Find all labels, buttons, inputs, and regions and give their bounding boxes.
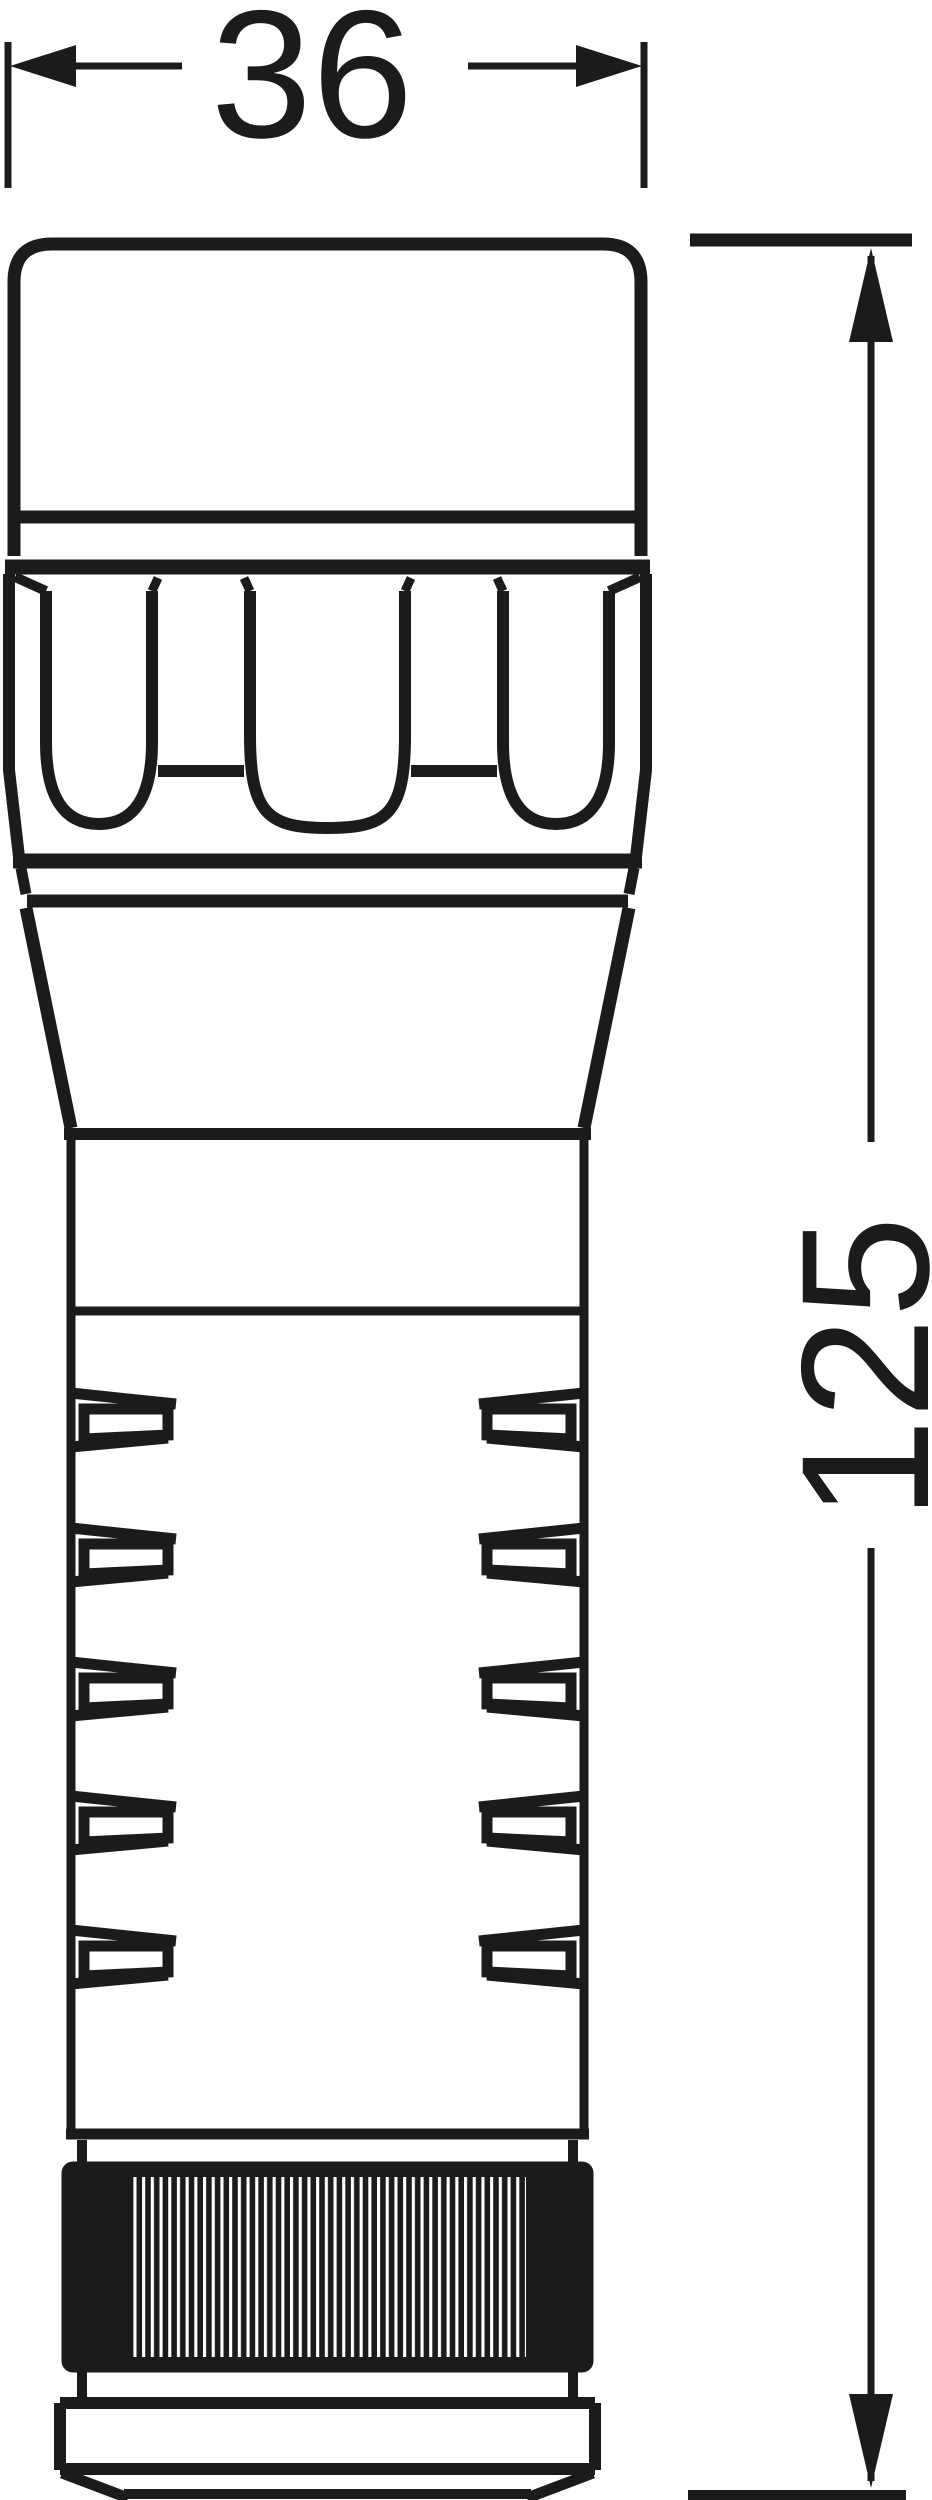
- bezel-groove: [46, 591, 152, 824]
- notch-lip-top: [71, 1662, 176, 1673]
- notch-lip-top: [71, 1796, 176, 1807]
- bezel-chamfer: [15, 577, 46, 591]
- tail-bevel-left: [62, 2473, 128, 2498]
- grip-notches-right: [479, 1393, 584, 1984]
- tail-bevel-right: [527, 2473, 593, 2498]
- notch-lip-top: [71, 1528, 176, 1539]
- width-dimension-label: 36: [211, 0, 413, 176]
- flashlight-outline: [5, 244, 650, 2498]
- arrow-down-icon: [849, 2394, 893, 2488]
- tail-section: [60, 2134, 595, 2498]
- head-cap-outline: [14, 244, 641, 556]
- bezel-tick: [152, 578, 158, 591]
- height-dimension: 125: [688, 240, 932, 2496]
- bezel-tick: [244, 578, 250, 591]
- bezel-right-half: [405, 574, 646, 894]
- bezel-left-half: [9, 574, 250, 894]
- notch-lip-top: [71, 1393, 176, 1404]
- bezel-groove-center: [250, 591, 405, 828]
- drawing-page: 36: [0, 0, 932, 2500]
- arrow-up-icon: [849, 248, 893, 342]
- width-dimension: 36: [8, 0, 644, 188]
- flashlight-dimension-drawing: 36: [0, 0, 932, 2500]
- notch-lip-top: [71, 1930, 176, 1941]
- head-cap: [8, 244, 647, 556]
- bezel-ring: [5, 567, 650, 901]
- taper-section: [26, 908, 629, 1134]
- taper-edge-right: [584, 908, 629, 1128]
- collar-link: [21, 868, 26, 894]
- knurled-band-stripes: [130, 2177, 526, 2357]
- arrow-right-icon: [576, 45, 642, 87]
- taper-edge-left: [26, 908, 71, 1128]
- arrow-left-icon: [10, 45, 76, 87]
- grip-notches-left: [71, 1393, 176, 1984]
- bezel-outer-edge: [9, 574, 19, 857]
- height-dimension-label: 125: [763, 1216, 932, 1520]
- tail-cap: [60, 2403, 595, 2498]
